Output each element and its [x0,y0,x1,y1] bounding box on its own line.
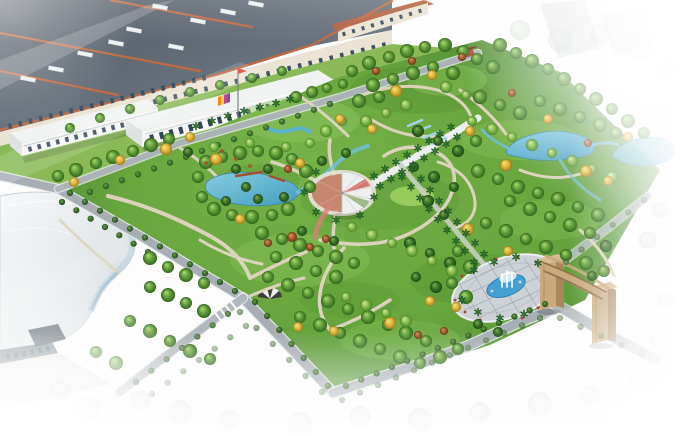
dots [340,191,343,194]
rendering-canvas [0,0,680,436]
aerial-site-rendering [0,0,680,436]
